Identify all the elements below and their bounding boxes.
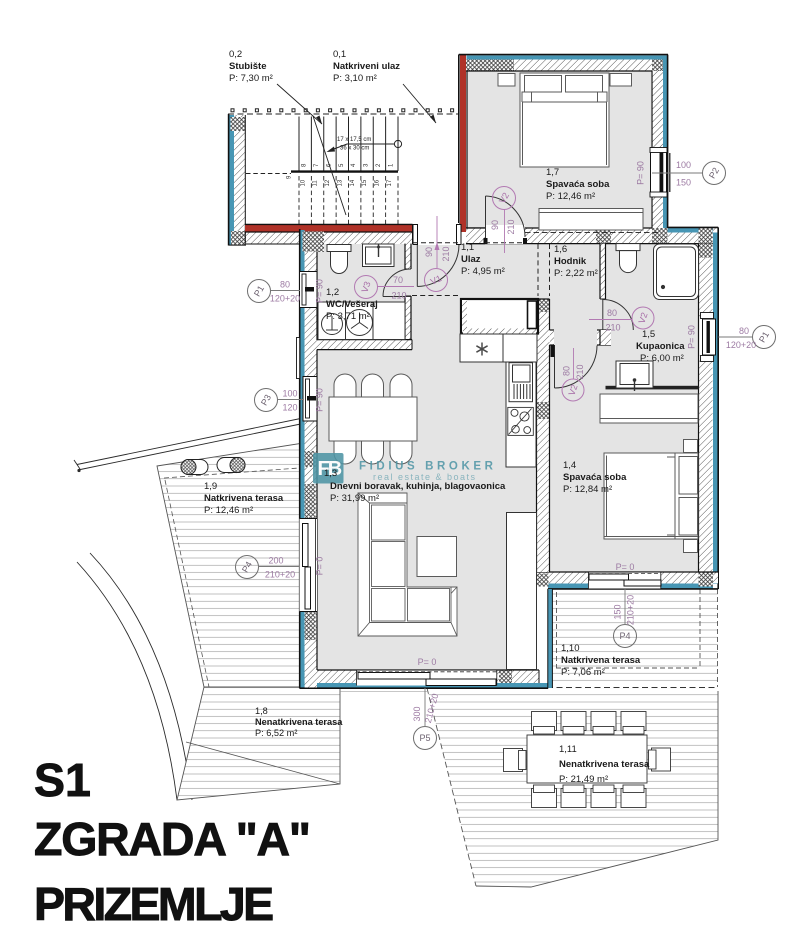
- svg-text:P= 90: P= 90: [315, 279, 325, 303]
- svg-text:PRIZEMLJE: PRIZEMLJE: [34, 878, 273, 930]
- svg-text:200: 200: [268, 556, 283, 566]
- svg-text:1,2: 1,2: [326, 287, 339, 298]
- svg-text:10: 10: [300, 179, 306, 186]
- svg-text:16: 16: [375, 179, 381, 186]
- svg-text:1,3: 1,3: [324, 468, 337, 479]
- svg-text:90: 90: [424, 247, 434, 257]
- svg-text:80: 80: [739, 326, 749, 336]
- svg-text:1,7: 1,7: [546, 167, 559, 178]
- svg-text:P: 6,52 m²: P: 6,52 m²: [255, 728, 297, 738]
- svg-text:100: 100: [282, 389, 297, 399]
- svg-text:12: 12: [325, 179, 331, 186]
- svg-text:70: 70: [393, 275, 403, 285]
- svg-text:S1: S1: [34, 754, 91, 806]
- svg-text:P: 21,49 m²: P: 21,49 m²: [559, 774, 608, 785]
- svg-text:11: 11: [313, 180, 319, 187]
- svg-text:90: 90: [490, 220, 500, 230]
- svg-text:P= 90: P= 90: [687, 325, 697, 349]
- svg-text:FIDIUS BROKER: FIDIUS BROKER: [359, 461, 497, 473]
- svg-text:150: 150: [613, 604, 623, 619]
- svg-text:1,8: 1,8: [255, 706, 268, 716]
- svg-text:P: 4,95 m²: P: 4,95 m²: [461, 266, 505, 277]
- svg-text:P: 12,46 m²: P: 12,46 m²: [546, 191, 595, 202]
- svg-text:P: 7,30 m²: P: 7,30 m²: [229, 73, 273, 84]
- svg-text:1,11: 1,11: [559, 744, 577, 755]
- svg-text:1,10: 1,10: [561, 643, 580, 654]
- svg-text:WC/Vešeraj: WC/Vešeraj: [326, 299, 378, 310]
- svg-text:120: 120: [282, 403, 297, 413]
- svg-text:Spavaća soba: Spavaća soba: [563, 472, 627, 483]
- svg-text:P= 0: P= 0: [418, 657, 437, 667]
- svg-text:150: 150: [676, 178, 691, 188]
- svg-text:Dnevni boravak, kuhinja, blago: Dnevni boravak, kuhinja, blagovaonica: [330, 481, 506, 492]
- svg-text:1,5: 1,5: [642, 329, 655, 340]
- svg-text:80: 80: [280, 280, 290, 290]
- svg-text:210: 210: [575, 364, 585, 379]
- svg-text:Stubište: Stubište: [229, 61, 266, 72]
- svg-text:300: 300: [412, 706, 422, 721]
- svg-text:Nenatkrivena terasa: Nenatkrivena terasa: [255, 717, 343, 727]
- svg-text:Natkrivena terasa: Natkrivena terasa: [561, 655, 641, 666]
- svg-text:80: 80: [607, 308, 617, 318]
- svg-text:210+20: 210+20: [265, 570, 295, 580]
- svg-text:0,1: 0,1: [333, 49, 346, 60]
- svg-text:ZGRADA "A": ZGRADA "A": [34, 813, 310, 865]
- svg-text:1,1: 1,1: [461, 242, 474, 253]
- svg-text:Kupaonica: Kupaonica: [636, 341, 685, 352]
- svg-text:P= 90: P= 90: [636, 161, 646, 185]
- svg-text:P= 0: P= 0: [616, 562, 635, 572]
- svg-text:P= 90: P= 90: [315, 388, 325, 412]
- svg-text:P: 6,00 m²: P: 6,00 m²: [640, 353, 684, 364]
- svg-text:36 x 30 cm: 36 x 30 cm: [340, 146, 369, 152]
- svg-text:P= 0: P= 0: [315, 557, 325, 576]
- svg-text:14: 14: [350, 179, 356, 186]
- svg-text:P: 3,10 m²: P: 3,10 m²: [333, 73, 377, 84]
- svg-text:120+20: 120+20: [726, 340, 756, 350]
- svg-text:100: 100: [676, 160, 691, 170]
- svg-text:Nenatkrivena terasa: Nenatkrivena terasa: [559, 759, 650, 770]
- svg-text:13: 13: [337, 179, 343, 186]
- svg-text:17 x 17,5 cm: 17 x 17,5 cm: [337, 137, 371, 143]
- svg-text:210: 210: [506, 219, 516, 234]
- svg-text:P: 12,46 m²: P: 12,46 m²: [204, 505, 253, 516]
- svg-text:210: 210: [605, 323, 620, 333]
- svg-text:P: 31,99 m²: P: 31,99 m²: [330, 493, 379, 504]
- svg-text:210: 210: [441, 246, 451, 261]
- svg-text:0,2: 0,2: [229, 49, 242, 60]
- svg-text:1,6: 1,6: [554, 244, 567, 255]
- svg-text:210: 210: [391, 291, 406, 301]
- svg-text:P: 2,22 m²: P: 2,22 m²: [554, 268, 598, 279]
- svg-text:210+20: 210+20: [626, 595, 636, 625]
- svg-text:Natkrivena terasa: Natkrivena terasa: [204, 493, 284, 504]
- svg-text:1,9: 1,9: [204, 481, 217, 492]
- svg-text:1,4: 1,4: [563, 460, 576, 471]
- svg-text:120+20: 120+20: [270, 294, 300, 304]
- svg-text:Spavaća soba: Spavaća soba: [546, 179, 610, 190]
- svg-text:P: 12,84 m²: P: 12,84 m²: [563, 484, 612, 495]
- svg-text:15: 15: [362, 179, 368, 186]
- svg-text:17: 17: [387, 179, 393, 186]
- svg-text:P4: P4: [619, 631, 630, 641]
- svg-text:Natkriveni ulaz: Natkriveni ulaz: [333, 61, 400, 72]
- svg-text:P5: P5: [419, 733, 430, 743]
- svg-text:80: 80: [562, 366, 572, 376]
- svg-text:Ulaz: Ulaz: [461, 254, 481, 265]
- svg-text:P: 7,06 m²: P: 7,06 m²: [561, 667, 605, 678]
- svg-text:Hodnik: Hodnik: [554, 256, 587, 267]
- svg-text:P: 3,71 m²: P: 3,71 m²: [326, 311, 370, 322]
